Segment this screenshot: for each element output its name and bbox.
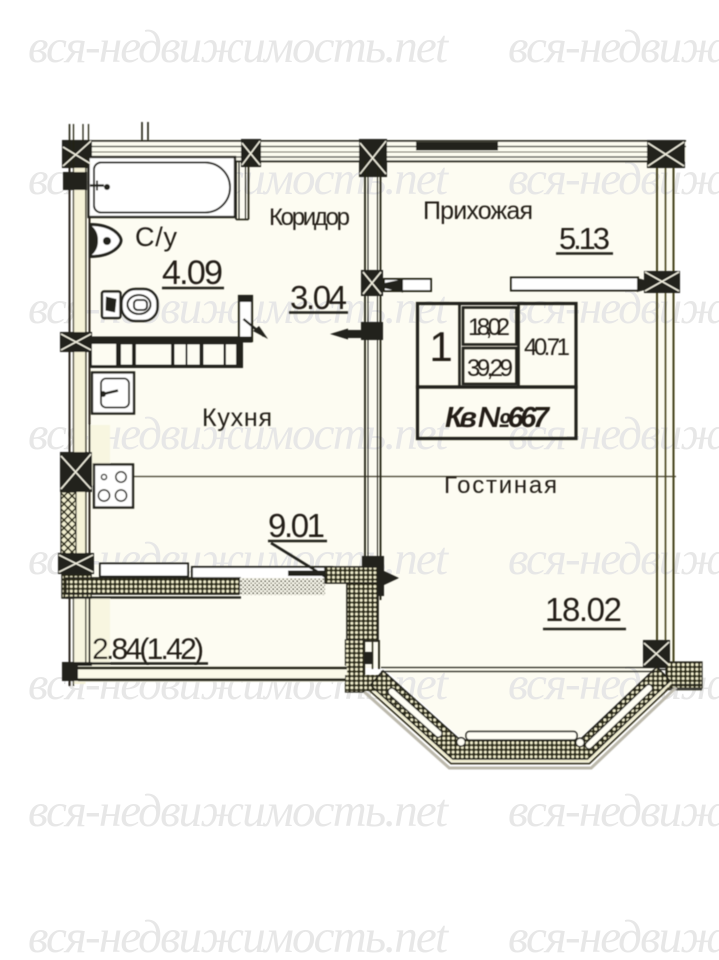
svg-text:Коридор: Коридор — [269, 204, 350, 231]
svg-text:18,02: 18,02 — [468, 314, 510, 341]
svg-text:Кв №667: Кв №667 — [445, 402, 551, 434]
svg-text:вся-недвижимость.net: вся-недвижимость.net — [508, 533, 719, 585]
svg-text:вся-недвижимость.net: вся-недвижимость.net — [508, 911, 719, 960]
svg-text:Гостиная: Гостиная — [444, 472, 557, 499]
svg-text:С/у: С/у — [135, 222, 178, 252]
svg-text:1: 1 — [429, 323, 452, 370]
svg-text:2.84(1.42): 2.84(1.42) — [92, 633, 204, 666]
svg-text:40.71: 40.71 — [524, 334, 570, 361]
svg-text:39,29: 39,29 — [467, 355, 513, 382]
svg-text:Кухня: Кухня — [202, 404, 272, 432]
svg-text:3.04: 3.04 — [290, 279, 347, 316]
svg-text:вся-недвижимость.net: вся-недвижимость.net — [508, 21, 719, 73]
svg-text:18.02: 18.02 — [545, 591, 622, 628]
svg-text:5.13: 5.13 — [559, 221, 610, 256]
svg-text:вся-недвижимость.net: вся-недвижимость.net — [508, 785, 719, 837]
svg-text:вся-недвижимость.net: вся-недвижимость.net — [28, 785, 449, 837]
svg-text:4.09: 4.09 — [162, 254, 223, 292]
svg-text:9.01: 9.01 — [268, 507, 325, 544]
svg-text:вся-недвижимость.net: вся-недвижимость.net — [28, 21, 449, 73]
svg-text:вся-недвижимость.net: вся-недвижимость.net — [28, 911, 449, 960]
svg-text:Прихожая: Прихожая — [423, 197, 533, 225]
